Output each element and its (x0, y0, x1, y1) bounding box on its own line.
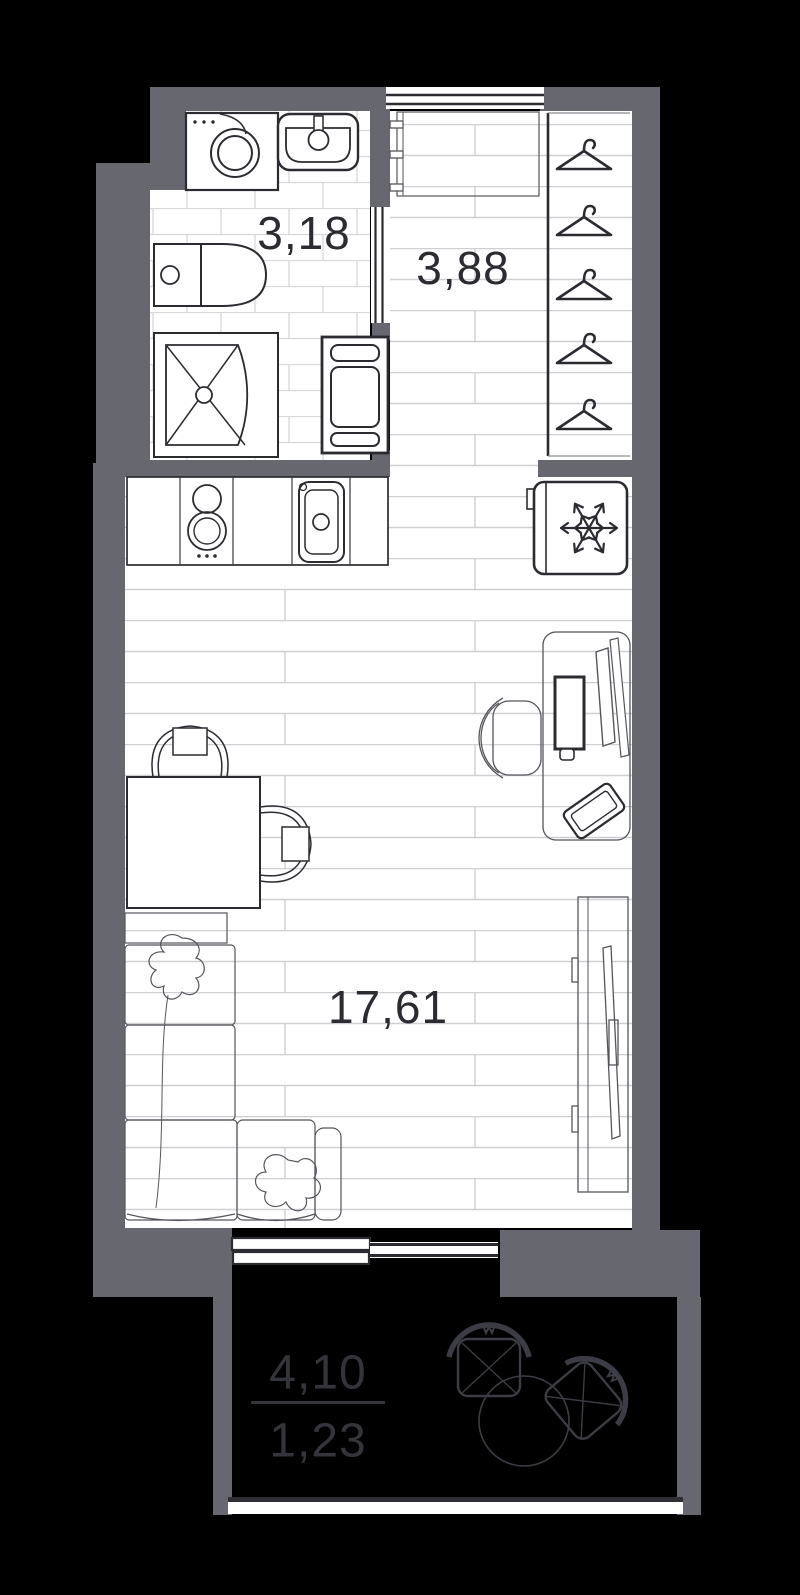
bathroom-area-label: 3,18 (257, 206, 351, 260)
wall-left-upper (96, 163, 150, 463)
wash-basin (278, 114, 358, 170)
monitor (555, 677, 584, 749)
wall-corner-duct (150, 87, 186, 190)
wall-bathroom-top (153, 87, 390, 111)
mouse (560, 749, 574, 760)
wall-hall-kitchen-stub (538, 460, 632, 477)
wall-balcony-right (677, 1297, 701, 1515)
toilet (154, 244, 266, 306)
washing-machine (186, 113, 278, 190)
wall-right (632, 87, 660, 1230)
kitchen-counter (127, 477, 388, 565)
shower-cabin (154, 333, 278, 457)
balcony-door (232, 1238, 370, 1264)
towel-rail-cabinet (322, 337, 388, 453)
balcony-area-total-label: 4,10 (269, 1346, 366, 1401)
wall-left-lower (93, 463, 125, 1228)
floor-plan-drawing (0, 0, 800, 1595)
living-area-label: 17,61 (328, 980, 448, 1034)
entrance-door (386, 87, 544, 109)
wall-bathroom-bottom (96, 460, 390, 477)
wall-balcony-left (213, 1297, 232, 1515)
balcony-fraction-line (251, 1401, 385, 1404)
dining-table (127, 777, 260, 908)
floor-plan: 3,18 3,88 17,61 4,10 1,23 (0, 0, 800, 1595)
balcony-area-counted-label: 1,23 (269, 1414, 366, 1469)
wall-balcony-left-chunk (93, 1228, 232, 1297)
bathroom-door (371, 207, 390, 323)
balcony-window (370, 1242, 498, 1258)
fridge (527, 482, 627, 574)
hallway-area-label: 3,88 (416, 241, 510, 295)
balcony-railing (228, 1497, 683, 1514)
kitchen-sink (299, 482, 344, 562)
wall-balcony-right-chunk (500, 1230, 700, 1297)
